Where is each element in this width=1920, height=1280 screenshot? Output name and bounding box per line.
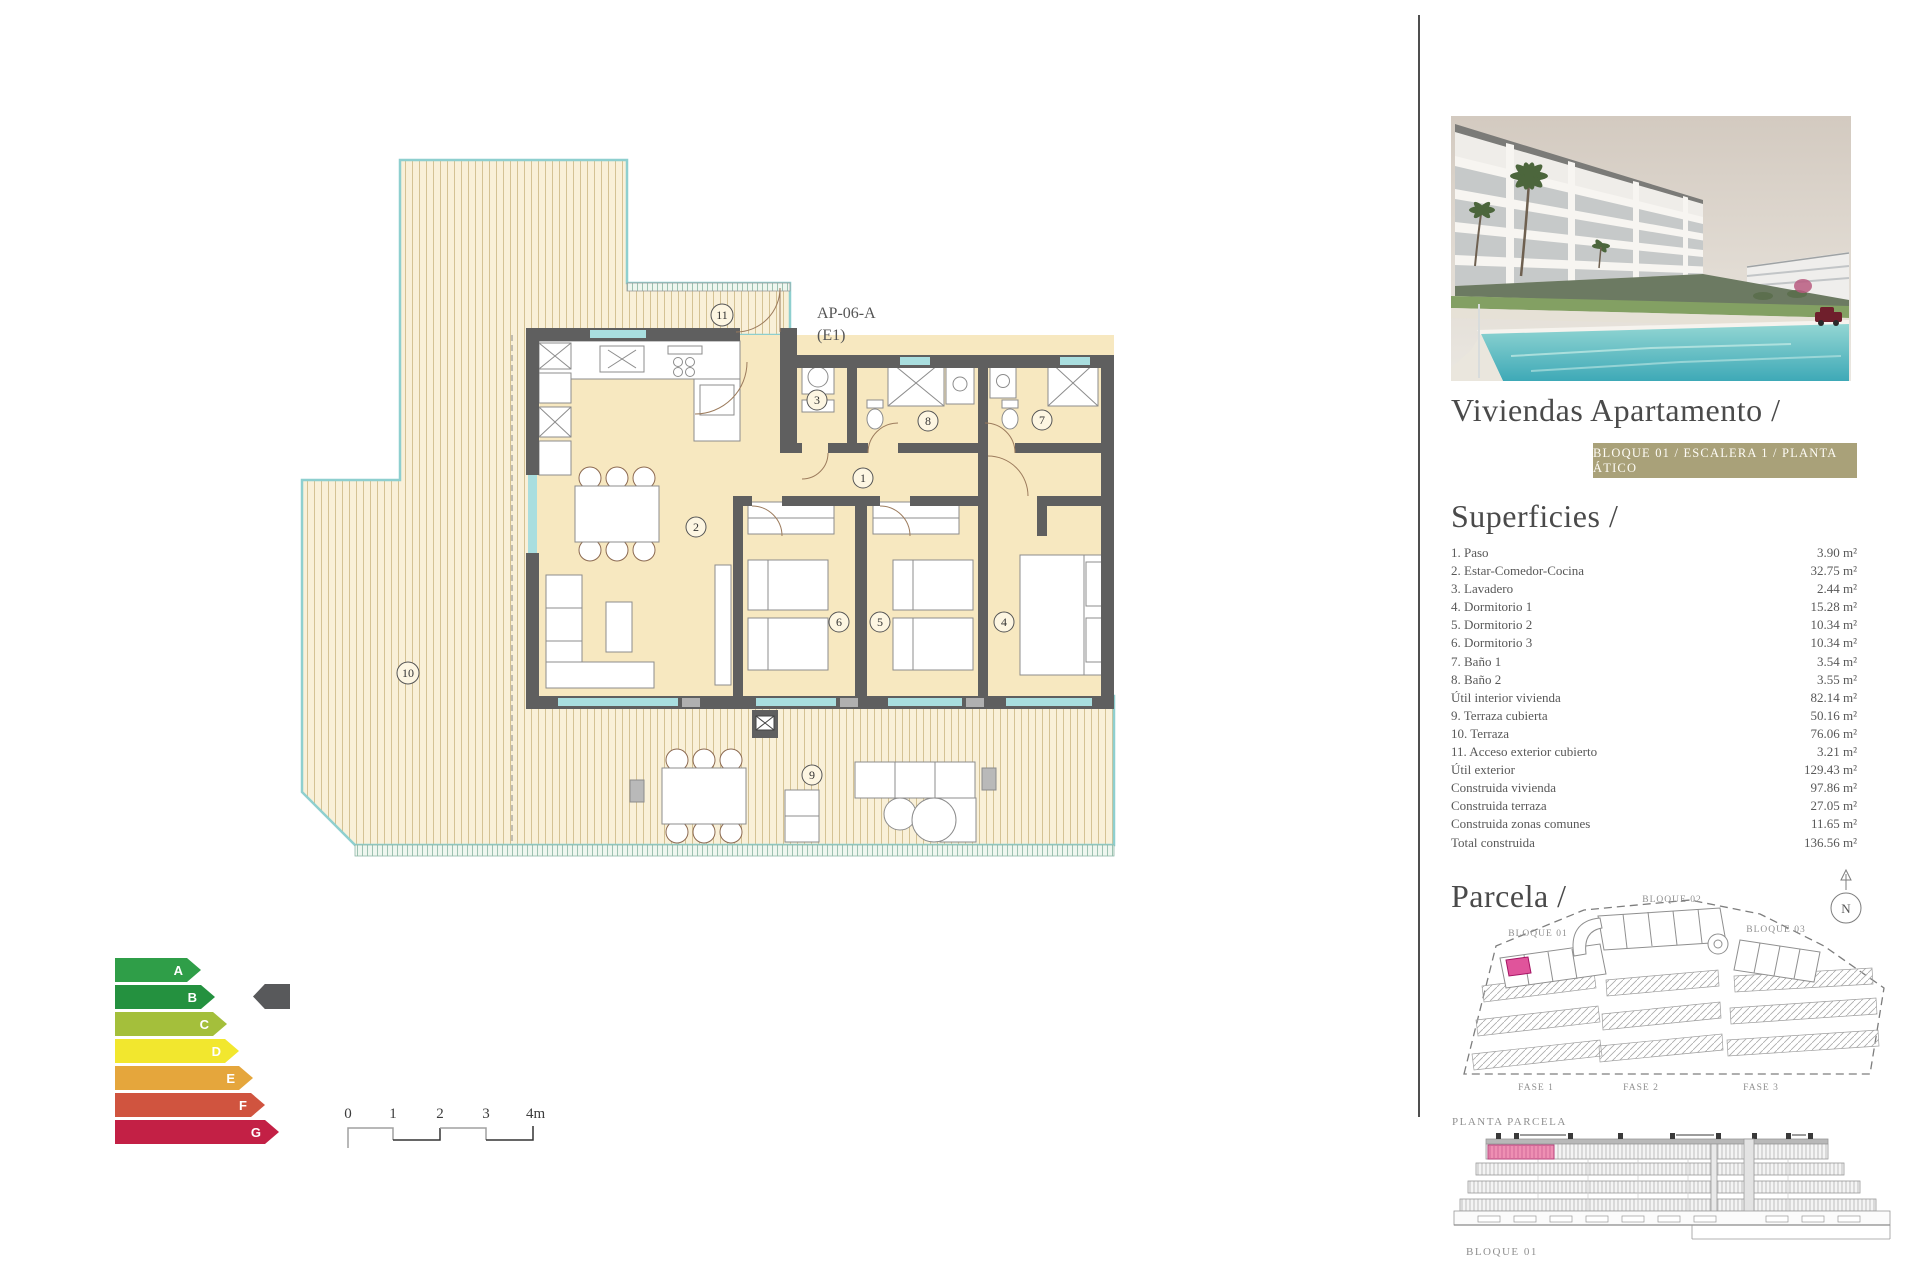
superficies-value: 97.86 m² xyxy=(1810,779,1857,797)
svg-text:(E1): (E1) xyxy=(817,327,845,344)
superficies-value: 76.06 m² xyxy=(1810,725,1857,743)
superficies-label: Construida terraza xyxy=(1451,797,1547,815)
energy-grade-row: F xyxy=(115,1093,325,1117)
svg-text:3: 3 xyxy=(814,393,820,407)
room-number: 9 xyxy=(802,765,822,785)
room-number: 8 xyxy=(918,411,938,431)
superficies-label: Útil interior vivienda xyxy=(1451,689,1561,707)
fase-label: FASE 3 xyxy=(1743,1083,1779,1093)
superficies-row: Construida terraza 27.05 m² xyxy=(1451,797,1857,815)
unit-badge: BLOQUE 01 / ESCALERA 1 / PLANTA ÁTICO xyxy=(1593,443,1857,478)
room-number: 2 xyxy=(686,517,706,537)
elevation-caption: BLOQUE 01 xyxy=(1466,1246,1538,1258)
superficies-list: 1. Paso 3.90 m² 2. Estar-Comedor-Cocina … xyxy=(1451,544,1857,852)
energy-grade-arrow: C xyxy=(115,1012,227,1036)
energy-grade-arrow: B xyxy=(115,985,215,1009)
superficies-value: 27.05 m² xyxy=(1810,797,1857,815)
energy-grade-row: E xyxy=(115,1066,325,1090)
superficies-label: 1. Paso xyxy=(1451,544,1489,562)
block-label: BLOQUE 02 xyxy=(1642,895,1701,905)
superficies-label: 9. Terraza cubierta xyxy=(1451,707,1548,725)
superficies-value: 15.28 m² xyxy=(1810,598,1857,616)
panel-divider xyxy=(1418,15,1420,1117)
north-compass-icon: N xyxy=(1831,870,1861,923)
plan-sheet: 1 2 3 4 5 6 7 8 9 10 11 AP-06-A (E1) A xyxy=(0,0,1920,1280)
svg-text:7: 7 xyxy=(1039,413,1045,427)
superficies-row: 1. Paso 3.90 m² xyxy=(1451,544,1857,562)
site-plan: BLOQUE 01 BLOQUE 02 BLOQUE 03 FASE 1 FAS… xyxy=(1448,868,1918,1118)
superficies-label: 10. Terraza xyxy=(1451,725,1509,743)
energy-grade-letter: A xyxy=(174,963,201,978)
superficies-value: 11.65 m² xyxy=(1811,815,1857,833)
dining-table xyxy=(575,467,659,561)
energy-grade-row: C xyxy=(115,1012,325,1036)
superficies-label: 2. Estar-Comedor-Cocina xyxy=(1451,562,1584,580)
superficies-row: 7. Baño 1 3.54 m² xyxy=(1451,653,1857,671)
scale-tick-label: 2 xyxy=(436,1106,444,1122)
energy-grade-arrow: A xyxy=(115,958,201,982)
superficies-row: Construida zonas comunes 11.65 m² xyxy=(1451,815,1857,833)
svg-text:6: 6 xyxy=(836,615,842,629)
energy-grade-arrow: D xyxy=(115,1039,239,1063)
superficies-row: 11. Acceso exterior cubierto 3.21 m² xyxy=(1451,743,1857,761)
superficies-label: Total construida xyxy=(1451,834,1535,852)
fase-label: FASE 2 xyxy=(1623,1083,1659,1093)
scale-tick-label: 3 xyxy=(482,1106,490,1122)
scale-tick-label: 4m xyxy=(526,1106,546,1122)
room-number: 10 xyxy=(397,662,419,684)
floor-plan: 1 2 3 4 5 6 7 8 9 10 11 AP-06-A (E1) xyxy=(290,150,1130,880)
superficies-row: Total construida 136.56 m² xyxy=(1451,834,1857,852)
superficies-row: Útil interior vivienda 82.14 m² xyxy=(1451,689,1857,707)
elevation-drawing xyxy=(1448,1133,1920,1243)
svg-text:4: 4 xyxy=(1001,615,1007,629)
scale-tick-label: 0 xyxy=(344,1106,352,1122)
superficies-label: 4. Dormitorio 1 xyxy=(1451,598,1532,616)
superficies-label: 6. Dormitorio 3 xyxy=(1451,634,1532,652)
superficies-row: 5. Dormitorio 2 10.34 m² xyxy=(1451,616,1857,634)
superficies-value: 10.34 m² xyxy=(1810,616,1857,634)
site-plan-caption: PLANTA PARCELA xyxy=(1452,1116,1567,1128)
superficies-row: 6. Dormitorio 3 10.34 m² xyxy=(1451,634,1857,652)
pillar-symbol xyxy=(756,716,774,730)
svg-text:2: 2 xyxy=(693,520,699,534)
scale-bar: 0 1 2 3 4m xyxy=(340,1100,560,1155)
energy-grade-letter: D xyxy=(212,1044,239,1059)
svg-text:1: 1 xyxy=(860,471,866,485)
scale-tick-label: 1 xyxy=(389,1106,397,1122)
superficies-label: Construida vivienda xyxy=(1451,779,1556,797)
energy-grade-row: G xyxy=(115,1120,325,1144)
energy-grade-letter: B xyxy=(188,990,215,1005)
superficies-value: 136.56 m² xyxy=(1804,834,1857,852)
energy-grade-row: B xyxy=(115,985,325,1009)
highlighted-unit-hatch xyxy=(1489,1146,1553,1158)
superficies-value: 3.54 m² xyxy=(1817,653,1857,671)
block-label: BLOQUE 03 xyxy=(1746,925,1805,935)
superficies-value: 129.43 m² xyxy=(1804,761,1857,779)
room-number: 6 xyxy=(829,612,849,632)
energy-grade-arrow: E xyxy=(115,1066,253,1090)
room-number: 1 xyxy=(853,468,873,488)
superficies-value: 2.44 m² xyxy=(1817,580,1857,598)
block-label: BLOQUE 01 xyxy=(1508,929,1567,939)
highlighted-unit xyxy=(1506,957,1531,976)
superficies-value: 10.34 m² xyxy=(1810,634,1857,652)
svg-text:N: N xyxy=(1841,901,1851,916)
room-number: 4 xyxy=(994,612,1014,632)
svg-text:8: 8 xyxy=(925,414,931,428)
superficies-row: 10. Terraza 76.06 m² xyxy=(1451,725,1857,743)
energy-grade-letter: G xyxy=(251,1125,279,1140)
bougainvillea xyxy=(1794,279,1812,293)
fase-label: FASE 1 xyxy=(1518,1083,1554,1093)
energy-grade-letter: F xyxy=(239,1098,265,1113)
superficies-row: 8. Baño 2 3.55 m² xyxy=(1451,671,1857,689)
room-number: 7 xyxy=(1032,410,1052,430)
superficies-row: Útil exterior 129.43 m² xyxy=(1451,761,1857,779)
room-number: 5 xyxy=(870,612,890,632)
superficies-value: 50.16 m² xyxy=(1810,707,1857,725)
svg-text:11: 11 xyxy=(716,308,728,322)
svg-text:AP-06-A: AP-06-A xyxy=(817,305,876,322)
page-title: Viviendas Apartamento / xyxy=(1451,392,1781,429)
energy-grade-arrow: G xyxy=(115,1120,279,1144)
energy-rating-scale: A B C D E xyxy=(115,958,325,1150)
superficies-label: 11. Acceso exterior cubierto xyxy=(1451,743,1597,761)
superficies-row: 2. Estar-Comedor-Cocina 32.75 m² xyxy=(1451,562,1857,580)
superficies-label: 8. Baño 2 xyxy=(1451,671,1501,689)
superficies-label: Útil exterior xyxy=(1451,761,1515,779)
superficies-value: 3.90 m² xyxy=(1817,544,1857,562)
superficies-label: Construida zonas comunes xyxy=(1451,815,1590,833)
superficies-row: 9. Terraza cubierta 50.16 m² xyxy=(1451,707,1857,725)
superficies-row: 3. Lavadero 2.44 m² xyxy=(1451,580,1857,598)
superficies-label: 3. Lavadero xyxy=(1451,580,1513,598)
energy-grade-letter: C xyxy=(200,1017,227,1032)
superficies-label: 7. Baño 1 xyxy=(1451,653,1501,671)
terrace-railing xyxy=(355,845,1114,856)
superficies-value: 3.55 m² xyxy=(1817,671,1857,689)
superficies-label: 5. Dormitorio 2 xyxy=(1451,616,1532,634)
superficies-row: Construida vivienda 97.86 m² xyxy=(1451,779,1857,797)
svg-text:5: 5 xyxy=(877,615,883,629)
superficies-value: 3.21 m² xyxy=(1817,743,1857,761)
superficies-row: 4. Dormitorio 1 15.28 m² xyxy=(1451,598,1857,616)
room-number: 3 xyxy=(807,390,827,410)
energy-grade-arrow: F xyxy=(115,1093,265,1117)
superficies-value: 82.14 m² xyxy=(1810,689,1857,707)
energy-grade-row: A xyxy=(115,958,325,982)
room-number: 11 xyxy=(711,304,733,326)
svg-text:10: 10 xyxy=(402,666,414,680)
planter-band xyxy=(627,283,790,291)
project-photo xyxy=(1451,116,1851,381)
superficies-heading: Superficies / xyxy=(1451,498,1618,535)
svg-text:9: 9 xyxy=(809,768,815,782)
bedroom3-furniture xyxy=(748,502,834,670)
energy-grade-letter: E xyxy=(226,1071,253,1086)
energy-grade-row: D xyxy=(115,1039,325,1063)
superficies-value: 32.75 m² xyxy=(1810,562,1857,580)
